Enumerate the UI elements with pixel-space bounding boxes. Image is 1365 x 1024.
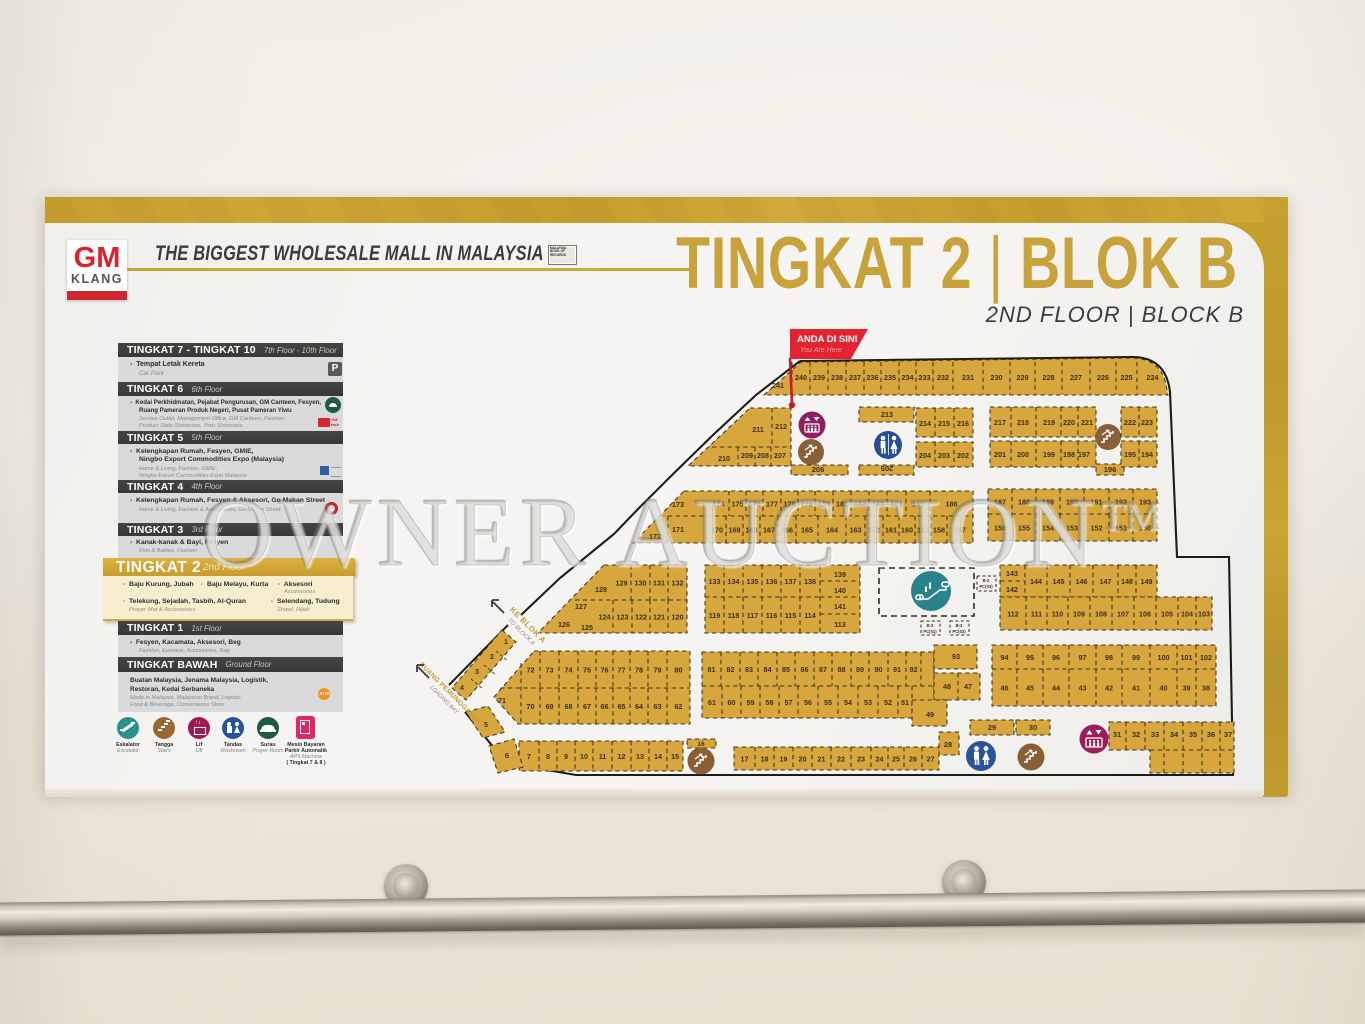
svg-text:121: 121	[653, 613, 665, 622]
svg-text:PC(01): PC(01)	[923, 629, 937, 634]
svg-text:14: 14	[654, 752, 662, 761]
svg-text:111: 111	[1031, 610, 1042, 619]
svg-text:100: 100	[1158, 653, 1170, 662]
svg-text:19: 19	[780, 755, 788, 764]
svg-text:210: 210	[718, 454, 730, 463]
svg-text:123: 123	[617, 613, 629, 622]
svg-text:25: 25	[892, 755, 900, 764]
svg-text:228: 228	[1043, 373, 1055, 382]
svg-text:8: 8	[546, 752, 550, 761]
svg-text:10: 10	[580, 752, 588, 761]
svg-text:9: 9	[564, 752, 568, 761]
svg-text:68: 68	[565, 702, 573, 711]
svg-text:1: 1	[504, 639, 508, 646]
svg-text:70: 70	[527, 702, 535, 711]
svg-text:28: 28	[944, 740, 952, 749]
svg-text:90: 90	[875, 665, 883, 674]
svg-text:58: 58	[766, 698, 774, 707]
svg-text:6: 6	[505, 751, 509, 760]
svg-text:3: 3	[475, 669, 479, 676]
svg-text:219: 219	[1043, 418, 1055, 427]
svg-text:91: 91	[893, 665, 901, 674]
svg-text:239: 239	[813, 373, 825, 382]
svg-text:77: 77	[618, 666, 626, 675]
svg-text:95: 95	[1026, 653, 1034, 662]
svg-text:229: 229	[1017, 373, 1029, 382]
svg-text:4: 4	[460, 685, 464, 692]
svg-text:199: 199	[1043, 450, 1055, 459]
svg-text:56: 56	[804, 698, 812, 707]
svg-text:40: 40	[1160, 684, 1168, 693]
svg-text:122: 122	[635, 613, 647, 622]
svg-text:104: 104	[1181, 610, 1193, 619]
svg-text:218: 218	[1017, 418, 1029, 427]
svg-text:235: 235	[884, 373, 896, 382]
svg-text:207: 207	[774, 451, 786, 460]
svg-text:127: 127	[575, 602, 587, 611]
svg-text:75: 75	[583, 666, 591, 675]
svg-text:51: 51	[901, 698, 909, 707]
svg-text:114: 114	[804, 611, 816, 620]
svg-text:203: 203	[938, 451, 950, 460]
svg-text:241: 241	[772, 381, 784, 390]
svg-text:60: 60	[728, 698, 736, 707]
svg-text:21: 21	[818, 755, 826, 764]
svg-text:223: 223	[1141, 418, 1153, 427]
svg-text:73: 73	[546, 666, 554, 675]
svg-text:238: 238	[831, 373, 843, 382]
svg-text:41: 41	[1132, 684, 1140, 693]
svg-text:79: 79	[654, 666, 662, 675]
svg-text:85: 85	[782, 665, 790, 674]
svg-text:43: 43	[1079, 684, 1087, 693]
svg-text:120: 120	[672, 613, 684, 622]
svg-text:112: 112	[1007, 610, 1019, 619]
svg-text:36: 36	[1207, 730, 1215, 739]
svg-text:222: 222	[1124, 418, 1136, 427]
svg-text:31: 31	[1113, 730, 1121, 739]
svg-text:113: 113	[834, 620, 846, 629]
svg-text:74: 74	[565, 666, 573, 675]
svg-text:37: 37	[1224, 730, 1232, 739]
svg-text:107: 107	[1117, 610, 1129, 619]
svg-text:98: 98	[1105, 653, 1113, 662]
svg-text:44: 44	[1052, 684, 1060, 693]
svg-text:224: 224	[1147, 373, 1159, 382]
svg-text:96: 96	[1052, 653, 1060, 662]
svg-text:16: 16	[697, 741, 705, 748]
svg-text:5: 5	[484, 720, 488, 729]
svg-text:71: 71	[498, 696, 506, 705]
svg-text:194: 194	[1141, 450, 1153, 459]
svg-text:53: 53	[864, 698, 872, 707]
svg-text:66: 66	[601, 702, 609, 711]
svg-text:221: 221	[1081, 418, 1093, 427]
svg-text:97: 97	[1079, 653, 1087, 662]
svg-text:197: 197	[1078, 450, 1090, 459]
svg-text:225: 225	[1121, 373, 1133, 382]
svg-text:64: 64	[635, 702, 643, 711]
svg-text:35: 35	[1189, 730, 1197, 739]
svg-text:PC(02): PC(02)	[952, 629, 966, 634]
svg-text:125: 125	[581, 623, 593, 632]
svg-text:212: 212	[775, 422, 787, 431]
svg-text:140: 140	[834, 586, 846, 595]
svg-text:61: 61	[708, 698, 716, 707]
svg-text:38: 38	[1202, 684, 1210, 693]
svg-text:54: 54	[844, 698, 852, 707]
svg-text:236: 236	[867, 373, 879, 382]
svg-text:17: 17	[741, 755, 749, 764]
svg-text:231: 231	[962, 373, 974, 382]
svg-text:124: 124	[599, 613, 611, 622]
svg-text:26: 26	[909, 755, 917, 764]
svg-text:217: 217	[994, 418, 1006, 427]
svg-text:34: 34	[1170, 730, 1179, 739]
svg-text:48: 48	[943, 682, 951, 691]
svg-text:80: 80	[675, 666, 683, 675]
svg-text:215: 215	[938, 419, 950, 428]
svg-text:237: 237	[849, 373, 861, 382]
svg-text:22: 22	[837, 755, 845, 764]
svg-text:49: 49	[926, 710, 934, 719]
svg-text:B-2: B-2	[927, 623, 934, 628]
svg-text:42: 42	[1105, 684, 1113, 693]
svg-text:65: 65	[618, 702, 626, 711]
svg-text:108: 108	[1095, 610, 1107, 619]
svg-text:211: 211	[752, 425, 764, 434]
svg-text:47: 47	[964, 682, 972, 691]
svg-text:141: 141	[834, 602, 846, 611]
svg-text:89: 89	[856, 665, 864, 674]
svg-text:33: 33	[1151, 730, 1159, 739]
svg-text:2: 2	[490, 654, 494, 661]
svg-text:200: 200	[1017, 450, 1029, 459]
svg-text:45: 45	[1026, 684, 1034, 693]
svg-text:11: 11	[599, 752, 607, 761]
svg-text:62: 62	[675, 702, 683, 711]
svg-text:234: 234	[902, 373, 914, 382]
svg-text:105: 105	[1161, 610, 1173, 619]
svg-text:117: 117	[747, 611, 759, 620]
svg-text:198: 198	[1063, 450, 1075, 459]
svg-text:67: 67	[583, 702, 591, 711]
svg-text:226: 226	[1097, 373, 1109, 382]
svg-text:101: 101	[1181, 653, 1193, 662]
svg-text:201: 201	[994, 450, 1006, 459]
svg-text:118: 118	[728, 611, 740, 620]
svg-text:103: 103	[1198, 610, 1210, 619]
svg-text:202: 202	[957, 451, 969, 460]
svg-text:214: 214	[919, 419, 931, 428]
svg-text:78: 78	[635, 666, 643, 675]
svg-text:57: 57	[785, 698, 793, 707]
svg-text:76: 76	[601, 666, 609, 675]
svg-text:29: 29	[988, 723, 996, 732]
svg-text:23: 23	[857, 755, 865, 764]
svg-text:72: 72	[527, 666, 535, 675]
svg-text:59: 59	[747, 698, 755, 707]
svg-text:86: 86	[801, 665, 809, 674]
svg-text:99: 99	[1132, 653, 1140, 662]
svg-text:ANDA DI SINI: ANDA DI SINI	[797, 334, 857, 345]
svg-text:82: 82	[727, 665, 735, 674]
svg-text:208: 208	[757, 451, 769, 460]
svg-text:46: 46	[1001, 684, 1009, 693]
svg-text:32: 32	[1132, 730, 1140, 739]
svg-text:15: 15	[671, 752, 679, 761]
svg-text:230: 230	[991, 373, 1003, 382]
svg-text:213: 213	[881, 410, 893, 419]
svg-text:216: 216	[957, 419, 969, 428]
svg-text:81: 81	[708, 665, 716, 674]
svg-text:18: 18	[761, 755, 769, 764]
svg-text:240: 240	[795, 373, 807, 382]
svg-text:83: 83	[745, 665, 753, 674]
svg-text:B-2: B-2	[956, 623, 963, 628]
svg-text:12: 12	[618, 752, 626, 761]
svg-text:39: 39	[1183, 684, 1191, 693]
svg-text:232: 232	[937, 373, 949, 382]
svg-text:204: 204	[919, 451, 931, 460]
svg-text:24: 24	[876, 755, 884, 764]
svg-text:220: 220	[1063, 418, 1075, 427]
svg-text:69: 69	[546, 702, 554, 711]
svg-text:7: 7	[527, 752, 531, 761]
svg-text:52: 52	[884, 698, 892, 707]
svg-text:110: 110	[1052, 610, 1064, 619]
svg-text:13: 13	[636, 752, 644, 761]
svg-text:209: 209	[741, 451, 753, 460]
svg-text:94: 94	[1001, 653, 1009, 662]
svg-text:116: 116	[766, 611, 778, 620]
svg-text:119: 119	[709, 611, 721, 620]
svg-text:27: 27	[927, 755, 935, 764]
svg-text:126: 126	[558, 620, 570, 629]
svg-text:87: 87	[819, 665, 827, 674]
svg-text:102: 102	[1200, 653, 1212, 662]
svg-text:84: 84	[764, 665, 772, 674]
svg-text:20: 20	[799, 755, 807, 764]
svg-text:195: 195	[1124, 450, 1136, 459]
svg-text:109: 109	[1073, 610, 1085, 619]
svg-text:88: 88	[838, 665, 846, 674]
svg-text:115: 115	[785, 611, 797, 620]
svg-text:30: 30	[1029, 723, 1037, 732]
svg-text:106: 106	[1139, 610, 1151, 619]
svg-text:63: 63	[654, 702, 662, 711]
svg-text:You Are Here: You Are Here	[800, 347, 842, 354]
svg-text:92: 92	[910, 665, 918, 674]
svg-text:93: 93	[952, 652, 960, 661]
svg-text:233: 233	[919, 373, 931, 382]
svg-text:55: 55	[824, 698, 832, 707]
svg-text:227: 227	[1070, 373, 1082, 382]
